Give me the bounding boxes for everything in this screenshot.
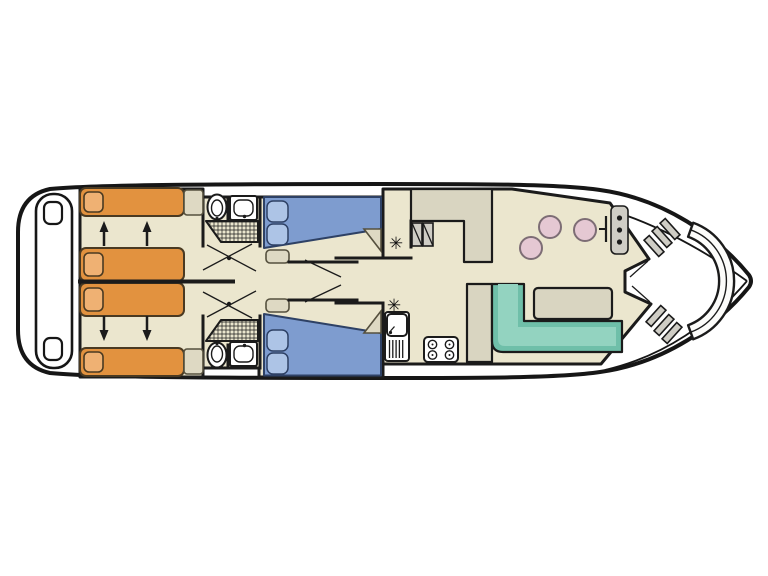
bar-stool — [539, 216, 561, 238]
pillow — [84, 288, 103, 311]
gauge — [617, 239, 622, 244]
galley-sink-unit — [385, 312, 409, 361]
saloon-cabinet — [467, 284, 492, 362]
sink-faucet — [243, 344, 246, 347]
pillow — [84, 192, 103, 212]
stern-platform — [36, 194, 72, 368]
stern-step-bottom — [44, 338, 62, 360]
stove-icon — [424, 337, 458, 362]
heater-icon: ✳ — [389, 234, 403, 254]
door-hinge — [227, 302, 231, 306]
bar-stool — [520, 237, 542, 259]
sink-faucet — [389, 331, 392, 334]
toilet-flush — [215, 217, 218, 220]
pillow — [267, 353, 288, 374]
toilet-flush — [215, 342, 218, 345]
gauge — [617, 227, 622, 232]
bar-stool — [574, 219, 596, 241]
boat-floor-plan: ✳ ✳ — [0, 0, 768, 576]
pillow — [84, 253, 103, 276]
saloon-table — [534, 288, 612, 319]
pillow — [267, 330, 288, 351]
stern-step-top — [44, 202, 62, 224]
sink-faucet — [243, 215, 246, 218]
bed-bench — [266, 250, 289, 263]
pillow — [267, 224, 288, 245]
pillow — [84, 352, 103, 372]
bedside-cabinet-bottom — [184, 349, 203, 374]
bedside-cabinet-top — [184, 190, 203, 215]
pillow — [267, 201, 288, 222]
door-hinge — [227, 256, 231, 260]
floor-plan-canvas: ✳ ✳ — [0, 0, 768, 576]
bed-bench — [266, 299, 289, 312]
gauge — [617, 215, 622, 220]
